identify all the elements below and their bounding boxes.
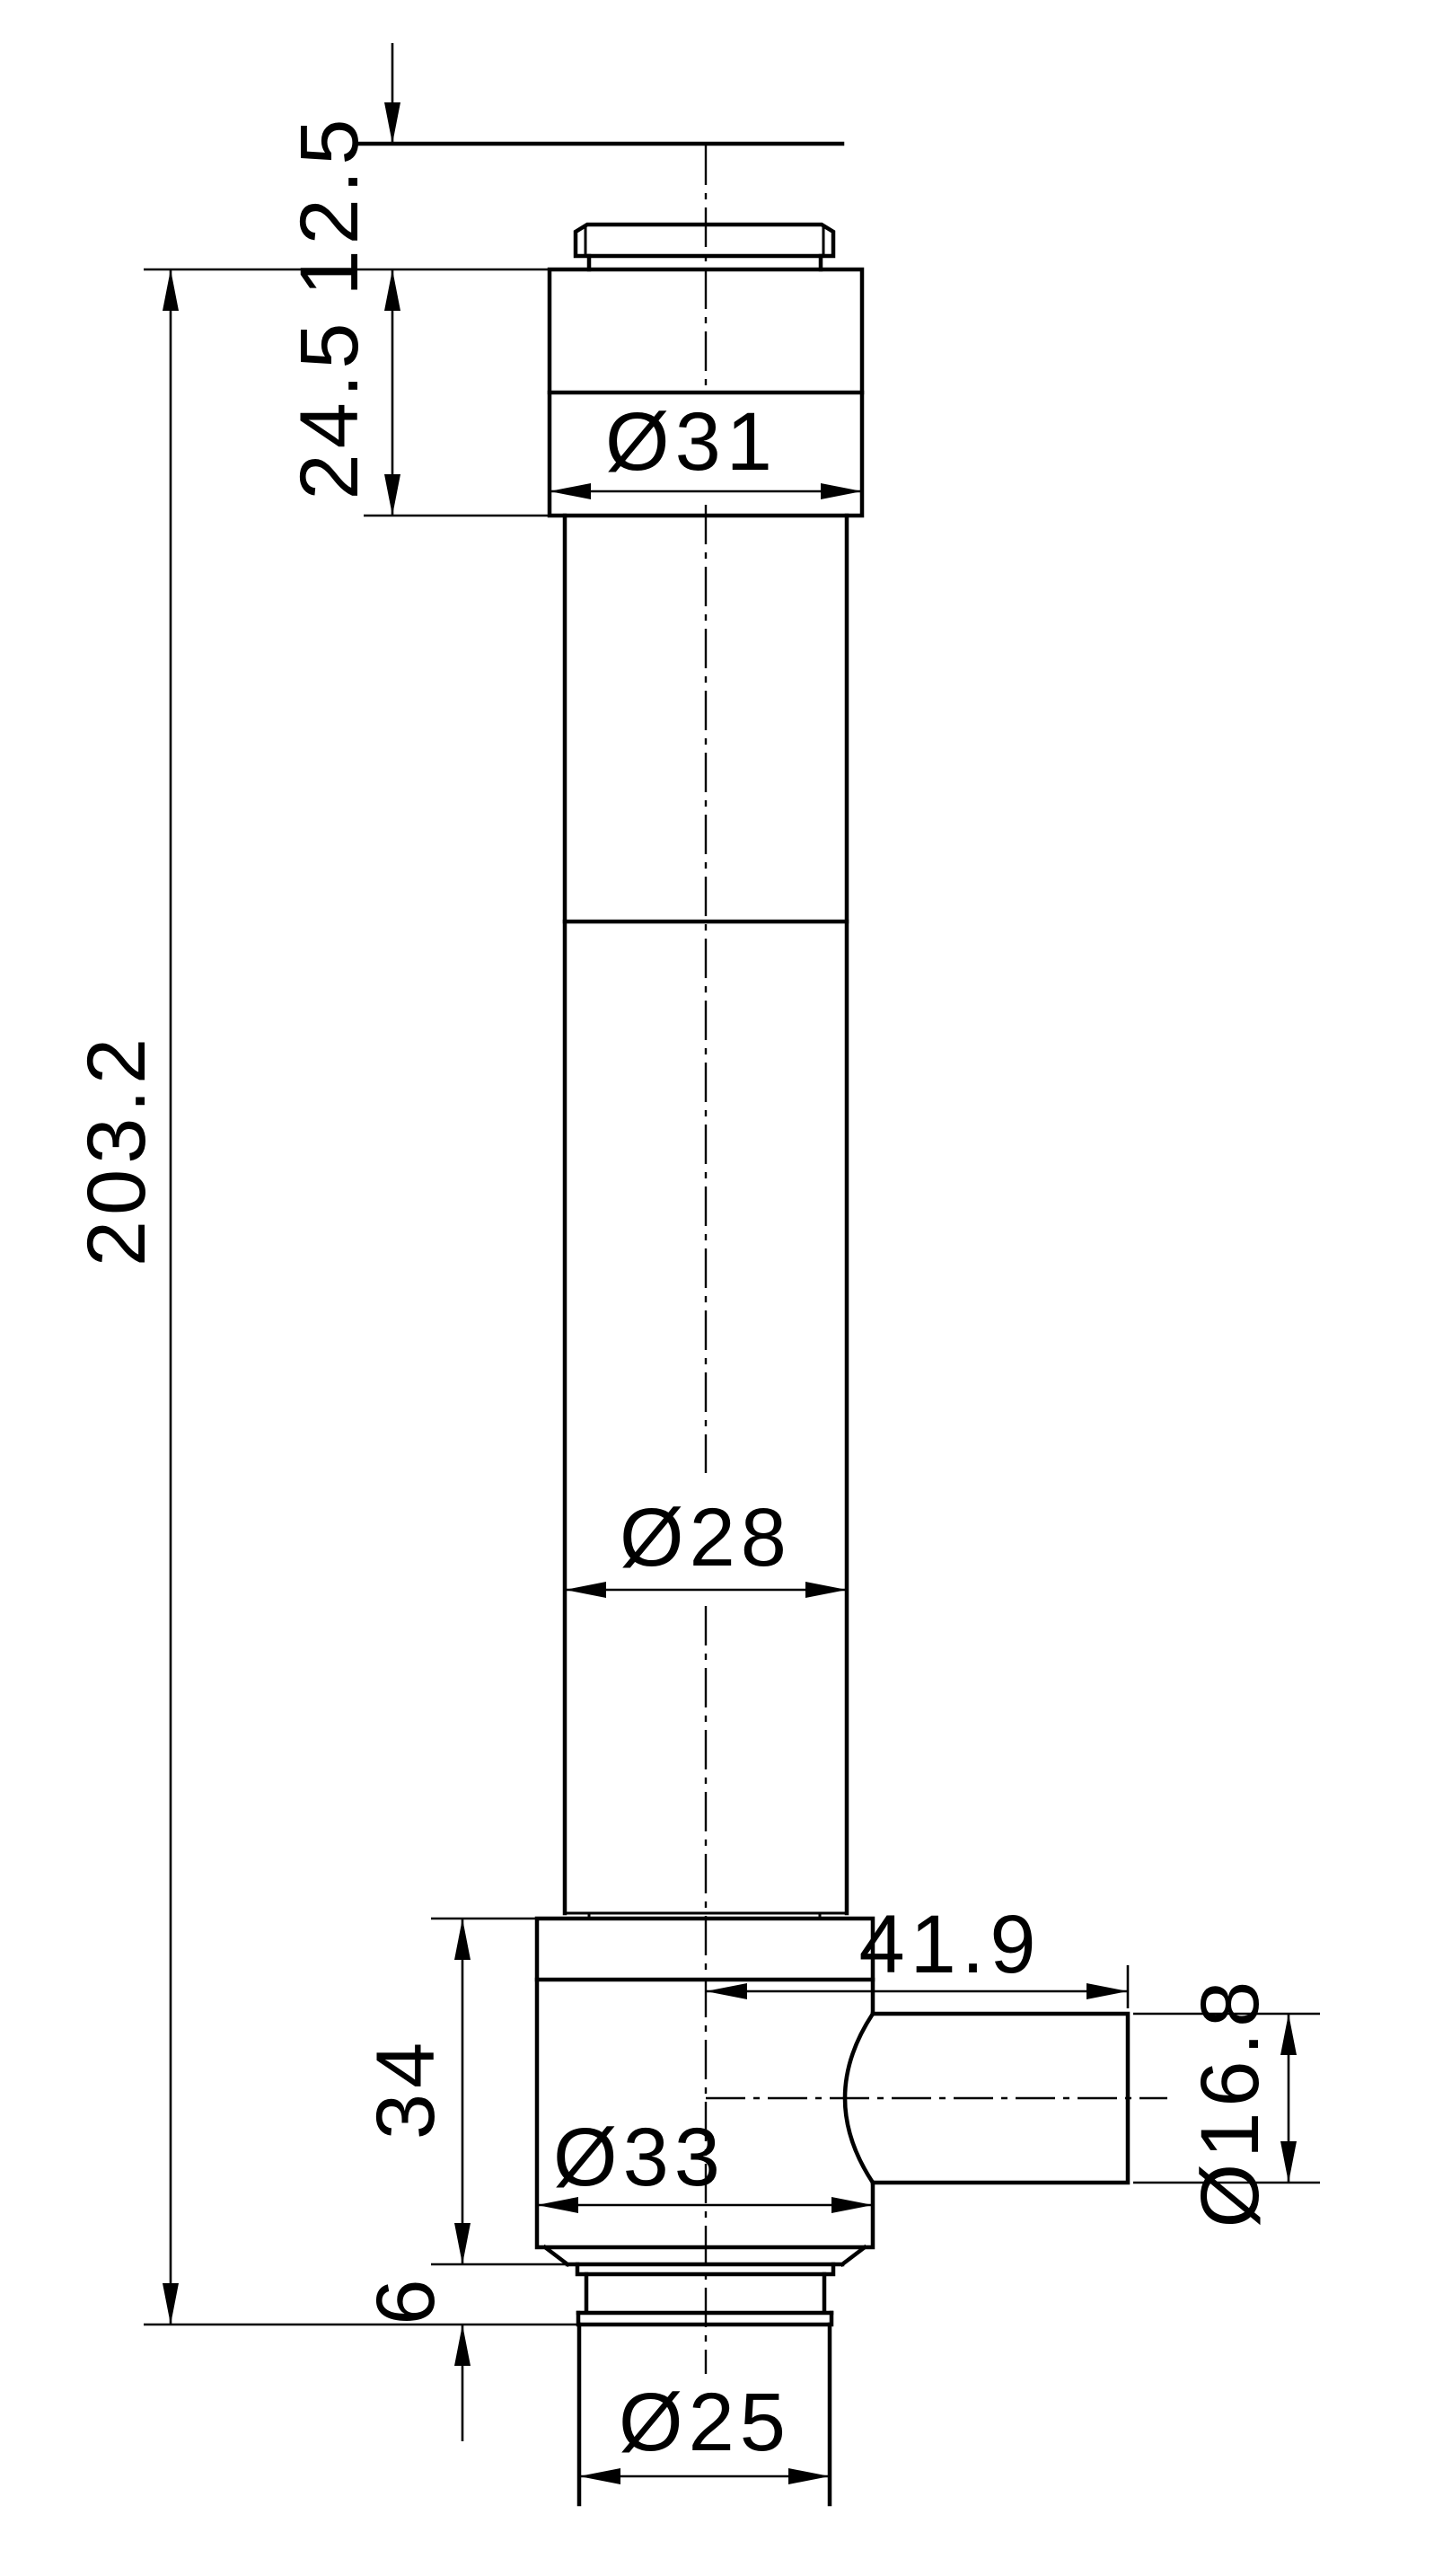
arrowhead-right-icon xyxy=(1086,1983,1128,1999)
dim-label-port-diameter: Ø16.8 xyxy=(1184,1976,1276,2228)
arrowhead-right-icon xyxy=(821,483,862,499)
arrowhead-left-icon xyxy=(550,483,591,499)
dim-label-port-length: 41.9 xyxy=(858,1899,1041,1990)
dim-label-top-offset: 12.5 xyxy=(284,113,375,296)
dimension-lower-block-diameter: Ø33 xyxy=(537,2112,873,2213)
dim-label-upper-block-height: 24.5 xyxy=(284,317,375,499)
dim-label-upper-block-diameter: Ø31 xyxy=(605,396,778,488)
arrowhead-right-icon xyxy=(788,2468,830,2484)
dim-label-bottom-tube-diameter: Ø25 xyxy=(619,2377,791,2468)
arrowhead-up-icon xyxy=(163,269,179,311)
dim-label-lower-block-height: 34 xyxy=(360,2037,452,2139)
part-outline xyxy=(357,144,1128,2504)
arrowhead-up-icon xyxy=(454,1919,471,1960)
arrowhead-left-icon xyxy=(579,2468,620,2484)
dim-label-overall-length: 203.2 xyxy=(71,1033,163,1266)
dimension-upper-block-diameter: Ø31 xyxy=(550,396,862,499)
dim-label-flange-height: 6 xyxy=(360,2273,452,2325)
arrowhead-up-icon xyxy=(454,2325,471,2366)
extension-lines xyxy=(144,269,1320,2325)
arrowhead-down-icon xyxy=(454,2223,471,2264)
dimension-upper-block-height: 24.5 xyxy=(284,269,400,516)
arrowhead-down-icon xyxy=(1280,2141,1297,2183)
dim-label-tube-diameter: Ø28 xyxy=(620,1492,792,1584)
dim-label-lower-block-diameter: Ø33 xyxy=(553,2112,726,2203)
arrowhead-right-icon xyxy=(805,1582,847,1598)
top-cap-outline xyxy=(576,225,833,256)
dimension-top-offset: 12.5 xyxy=(284,43,400,296)
dimension-lower-block-height: 34 xyxy=(360,1919,471,2264)
dimension-overall-length: 203.2 xyxy=(71,269,179,2325)
arrowhead-right-icon xyxy=(831,2197,873,2213)
top-cap-chamfer-edges xyxy=(585,226,823,256)
drawing-canvas: 12.5 24.5 203.2 Ø31 Ø28 xyxy=(0,0,1434,2576)
dimension-flange-height: 6 xyxy=(360,2273,471,2441)
arrowhead-down-icon xyxy=(384,474,400,516)
dimension-bottom-tube-diameter: Ø25 xyxy=(579,2377,830,2484)
arrowhead-left-icon xyxy=(706,1983,747,1999)
arrowhead-up-icon xyxy=(384,269,400,311)
arrowhead-left-icon xyxy=(565,1582,606,1598)
technical-drawing: 12.5 24.5 203.2 Ø31 Ø28 xyxy=(0,0,1434,2576)
arrowhead-down-icon xyxy=(384,102,400,144)
arrowhead-up-icon xyxy=(1280,2014,1297,2055)
arrowhead-down-icon xyxy=(163,2283,179,2325)
dimension-tube-diameter: Ø28 xyxy=(565,1492,847,1598)
